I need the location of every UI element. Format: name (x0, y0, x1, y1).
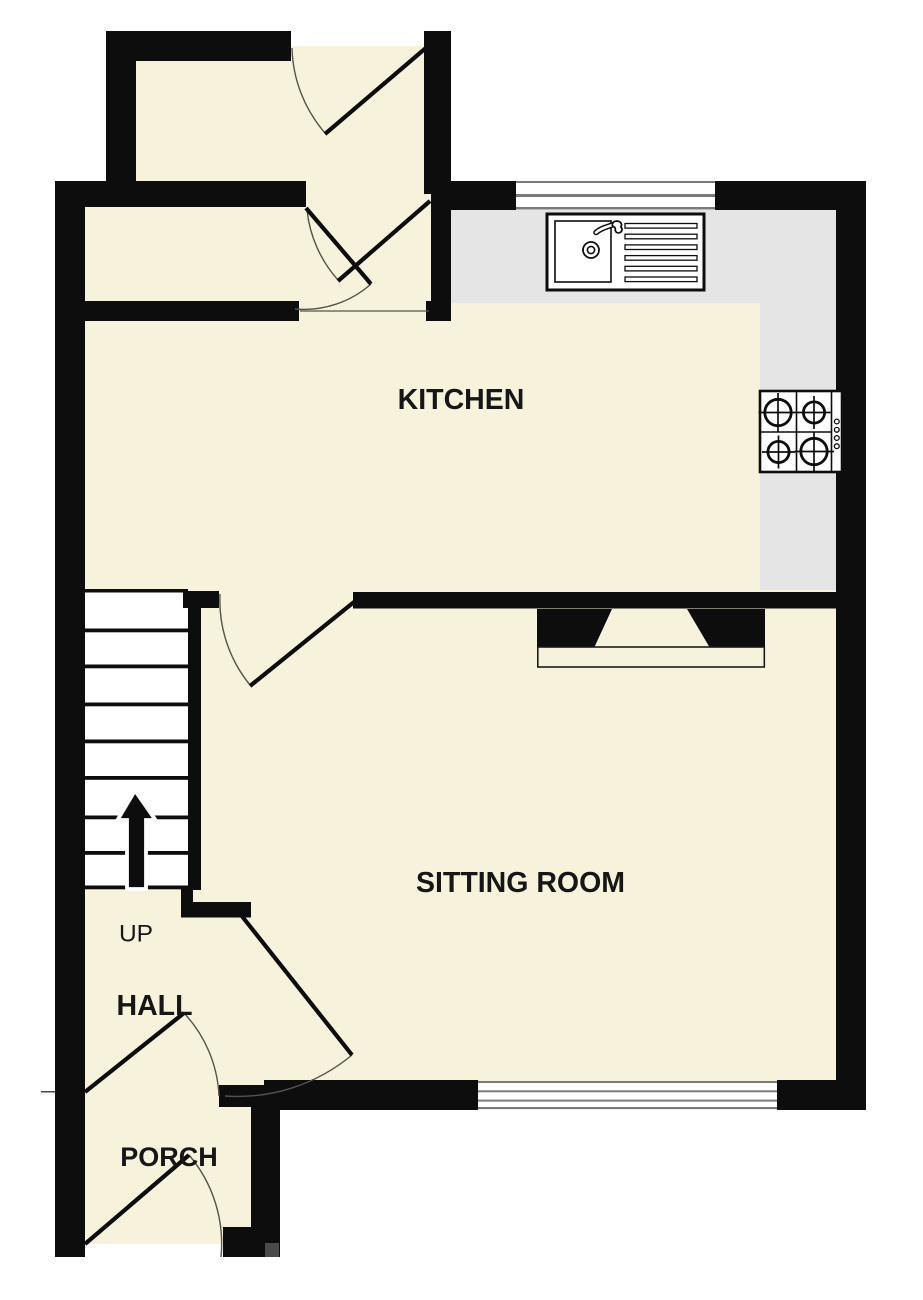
svg-text:KITCHEN: KITCHEN (398, 384, 525, 416)
svg-text:UP: UP (119, 921, 153, 948)
svg-text:HALL: HALL (117, 990, 193, 1022)
svg-text:SITTING ROOM: SITTING ROOM (416, 867, 625, 899)
svg-text:PORCH: PORCH (120, 1142, 218, 1172)
